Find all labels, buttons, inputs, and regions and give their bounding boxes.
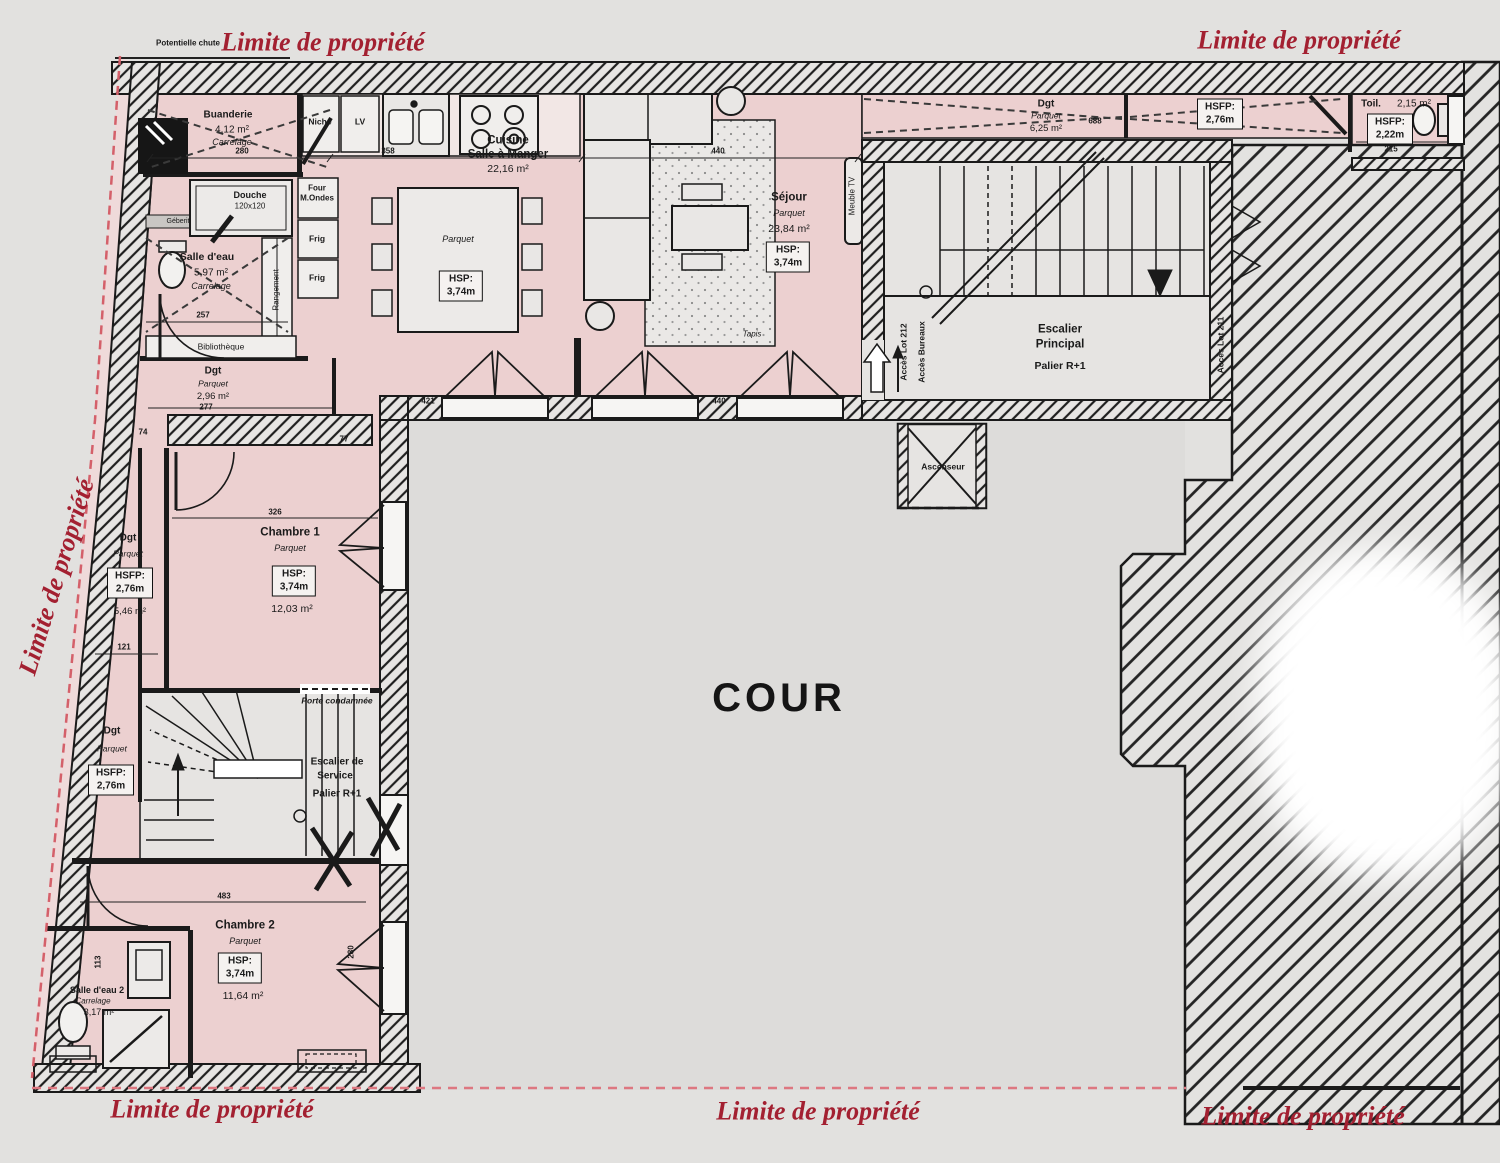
limite-label-top-left: Limite de propriété [221, 29, 425, 58]
chambre1-area: 12,03 m² [271, 604, 312, 616]
dgt-nord-hsfp-label: HSFP: [1205, 102, 1235, 115]
dining-table [372, 188, 542, 332]
toilettes-area: 2,15 m² [1397, 99, 1431, 110]
dgt-entree-area: 2,96 m² [197, 392, 229, 402]
dgt-sud-floor: Parquet [97, 744, 127, 753]
limite-label-bottom-left: Limite de propriété [110, 1096, 314, 1125]
limite-label-bottom-right: Limite de propriété [1201, 1103, 1405, 1132]
chambre1-hsp-value: 3,74m [280, 581, 308, 594]
corridor-nord [862, 94, 1352, 138]
dim-688: 688 [1088, 118, 1101, 127]
chambre1-floor: Parquet [274, 544, 306, 554]
escalier-service-1: Escalier de [311, 757, 364, 768]
escalier-principal-3: Palier R+1 [1034, 361, 1085, 373]
chambre2-hsp-box: HSP: 3,74m [218, 953, 262, 984]
sejour-hsp-label: HSP: [774, 245, 802, 258]
dim-280: 280 [235, 148, 248, 157]
chambre1-hsp-box: HSP: 3,74m [272, 566, 316, 597]
escalier-service-3: Palier R+1 [313, 789, 362, 800]
limite-label-bottom-center: Limite de propriété [716, 1098, 920, 1127]
dgt-ouest-hsfp-value: 2,76m [115, 583, 145, 596]
salle-eau2-area: 3,17 m² [84, 1008, 115, 1018]
dim-440: 440 [711, 148, 724, 157]
frigo-label-1: Frig [309, 234, 325, 243]
escalier-principal-2: Principal [1036, 339, 1085, 352]
dim-74: 74 [139, 429, 148, 438]
chambre1-hsp-label: HSP: [280, 569, 308, 582]
dgt-nord-name: Dgt [1038, 99, 1055, 110]
chambre2-floor: Parquet [229, 937, 261, 947]
wc-3 [1413, 105, 1435, 135]
douche-label: Douche [233, 191, 266, 201]
dim-113: 113 [95, 956, 104, 969]
dgt-entree-floor: Parquet [198, 379, 228, 388]
sejour-hsp-box: HSP: 3,74m [766, 242, 810, 273]
dgt-entree-name: Dgt [205, 366, 222, 377]
side-table-1 [717, 87, 745, 115]
dim-358: 358 [381, 148, 394, 157]
sejour-area: 23,84 m² [768, 224, 809, 236]
dgt-sud-name: Dgt [104, 726, 121, 737]
geberit-label: Géberit [167, 218, 190, 226]
acces-bureaux-label: Accès Bureaux [917, 321, 926, 382]
dgt-sud-hsfp-value: 2,76m [96, 780, 126, 793]
sejour-name: Séjour [771, 192, 807, 205]
chambre1-name: Chambre 1 [260, 527, 319, 540]
sejour-hsp-value: 3,74m [774, 257, 802, 270]
side-table-2 [586, 302, 614, 330]
dim-257: 257 [196, 312, 209, 321]
cuisine-hsp-value: 3,74m [447, 286, 475, 299]
toilettes-hsfp-value: 2,22m [1375, 129, 1405, 142]
four-label: Four [308, 185, 326, 194]
cuisine-hsp-label: HSP: [447, 274, 475, 287]
mondes-label: M.Ondes [300, 195, 334, 204]
escalier-service-2: Service [317, 771, 353, 782]
frigo-label-2: Frig [309, 273, 325, 282]
dgt-nord-floor: Parquet [1031, 111, 1061, 120]
salle-eau-floor: Carrelage [191, 282, 231, 292]
tapis-label: Tapis [743, 331, 762, 340]
cuisine-hsp-box: HSP: 3,74m [439, 271, 483, 302]
dim-440b: 440 [712, 398, 725, 407]
acces-lot-212-label: Accès Lot 212 [899, 323, 908, 380]
cuisine-area: 22,16 m² [487, 164, 528, 176]
limite-label-top-right: Limite de propriété [1197, 27, 1401, 56]
buanderie-name: Buanderie [204, 110, 253, 121]
chambre2-area: 11,64 m² [223, 991, 264, 1003]
douche-dim-label: 120x120 [235, 203, 266, 212]
dim-280b: 280 [348, 945, 357, 958]
salle-eau-name: Salle d'eau [180, 252, 234, 264]
dgt-nord-hsfp-box: HSFP: 2,76m [1197, 99, 1243, 130]
sejour-floor: Parquet [773, 209, 805, 219]
acces-lot-211-label: Accès Lot 211 [1216, 317, 1225, 374]
salle-eau-area: 5,97 m² [194, 268, 228, 279]
niche-label: Niche [308, 117, 331, 126]
toilettes-hsfp-label: HSFP: [1375, 117, 1405, 130]
dim-215: 215 [1384, 146, 1397, 155]
dim-483: 483 [217, 893, 230, 902]
dim-421: 421 [421, 398, 434, 407]
dgt-nord-area: 6,25 m² [1030, 124, 1062, 134]
dim-277: 277 [199, 404, 212, 413]
dgt-nord-hsfp-value: 2,76m [1205, 114, 1235, 127]
dgt-sud-hsfp-label: HSFP: [96, 768, 126, 781]
cour-label: COUR [712, 676, 846, 720]
porte-condamnee-label: Porte condamnée [301, 696, 372, 705]
salle-eau2-name: Salle d'eau 2 [70, 986, 124, 996]
plan-drawing [0, 0, 1500, 1163]
toilettes-hsfp-box: HSFP: 2,22m [1367, 114, 1413, 145]
escalier-principal-1: Escalier [1038, 324, 1082, 337]
floor-plan: Limite de propriété Limite de propriété … [0, 0, 1500, 1163]
chambre2-hsp-value: 3,74m [226, 968, 254, 981]
bibliotheque-label: Bibliothèque [198, 342, 245, 351]
cuisine-name-1: Cuisine [487, 135, 529, 148]
potentielle-chute-label: Potentielle chute [156, 40, 220, 49]
sofa-left [584, 140, 650, 300]
toilettes-name: Toil. [1361, 99, 1381, 110]
chambre2-hsp-label: HSP: [226, 956, 254, 969]
chambre2-name: Chambre 2 [215, 920, 274, 933]
cuisine-floor: Parquet [442, 235, 474, 245]
cuisine-name-2: Salle à Manger [468, 149, 549, 162]
coffee-table [672, 206, 748, 250]
dim-77: 77 [340, 436, 349, 445]
dim-121: 121 [117, 644, 130, 653]
dgt-ouest-area: 5,46 m² [114, 607, 146, 617]
dgt-ouest-floor: Parquet [113, 549, 143, 558]
ascenseur-label: Ascenseur [921, 462, 964, 471]
dim-326: 326 [268, 509, 281, 518]
rangement-label: Rangement [273, 269, 282, 310]
meuble-tv-label: Meuble TV [849, 177, 858, 216]
dgt-ouest-hsfp-box: HSFP: 2,76m [107, 568, 153, 599]
cour-area [408, 420, 1185, 1090]
salle-eau2-floor: Carrelage [75, 998, 110, 1007]
lv-label: LV [355, 117, 365, 126]
faded-area [1255, 548, 1500, 878]
dgt-sud-hsfp-box: HSFP: 2,76m [88, 765, 134, 796]
dgt-ouest-name: Dgt [120, 533, 137, 544]
dgt-ouest-hsfp-label: HSFP: [115, 571, 145, 584]
buanderie-area: 4,12 m² [215, 125, 249, 136]
